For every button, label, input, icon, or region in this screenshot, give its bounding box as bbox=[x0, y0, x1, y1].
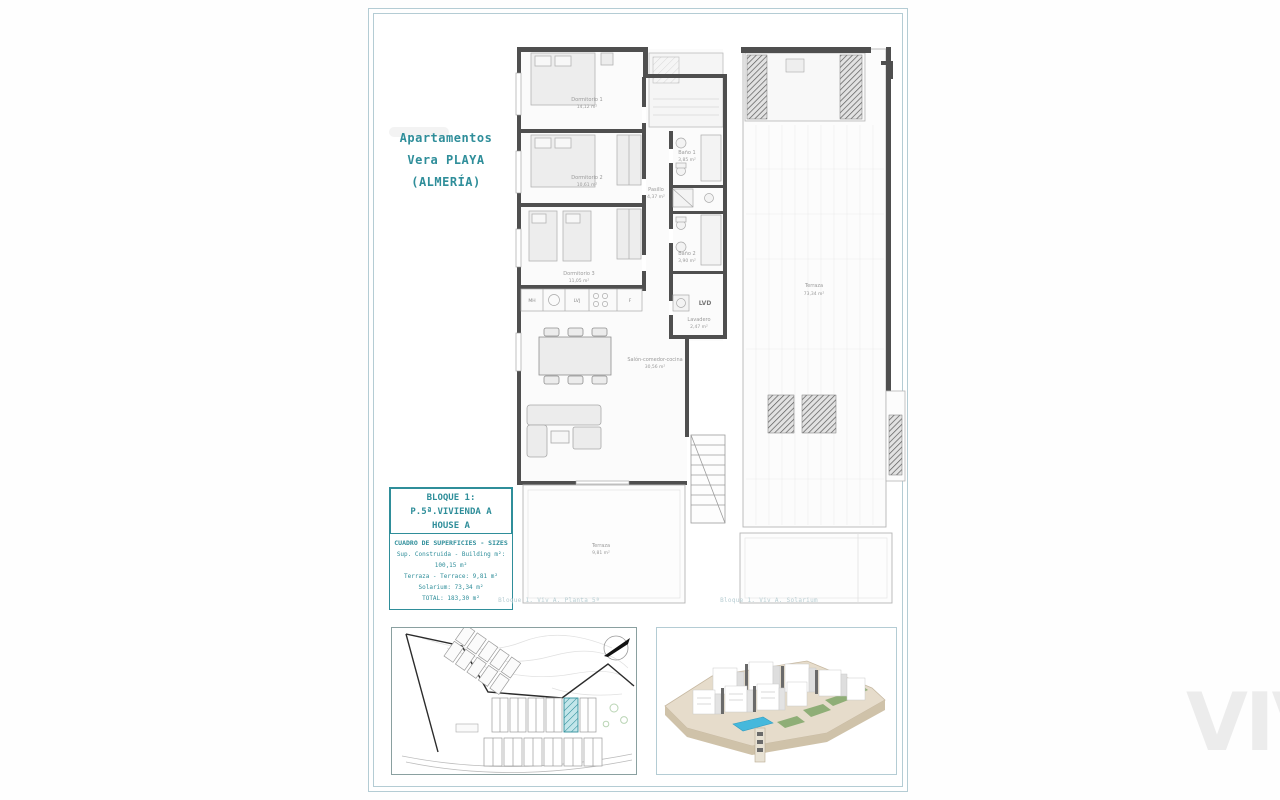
room-label-solarium-terraza: Terraza bbox=[804, 283, 823, 289]
room-area-dormitorio-1: 14,12 m² bbox=[577, 104, 598, 110]
room-area-terraza: 9,81 m² bbox=[592, 550, 610, 556]
drawing-sheet: Apartamentos Vera PLAYA (ALMERÍA) BLOQUE… bbox=[368, 8, 908, 792]
dining-table bbox=[539, 328, 611, 384]
surface-row-building: Sup. Construida - Building m²: 100,15 m² bbox=[391, 549, 511, 571]
project-title-line1: Apartamentos bbox=[387, 127, 505, 149]
appliance-label-lvd: LVD bbox=[699, 300, 712, 307]
room-label-pasillo: Pasillo bbox=[648, 187, 664, 193]
render-tower bbox=[755, 728, 765, 762]
floor-plan: Dormitorio 1 14,12 m² Dormitorio 2 10,61… bbox=[509, 39, 737, 617]
surface-table-title: CUADRO DE SUPERFICIES - SIZES bbox=[391, 538, 511, 549]
solarium-plan-caption: Bloque 1. Viv A. Solarium bbox=[699, 597, 839, 604]
room-area-pasillo: 4,37 m² bbox=[647, 194, 665, 200]
beds-dorm3 bbox=[529, 209, 641, 261]
site-plan bbox=[392, 628, 636, 774]
vive-watermark: VIVE bbox=[1186, 676, 1280, 769]
unit-row-top bbox=[492, 698, 596, 732]
unit-cluster-left bbox=[444, 628, 521, 694]
north-arrow-icon bbox=[604, 636, 630, 660]
block-info-box: BLOQUE 1: P.5ª.VIVIENDA A HOUSE A bbox=[389, 487, 513, 537]
room-area-dormitorio-2: 10,61 m² bbox=[577, 182, 598, 188]
room-area-solarium-terraza: 73,34 m² bbox=[804, 291, 825, 297]
aerial-render-image bbox=[657, 628, 896, 774]
page-background: Apartamentos Vera PLAYA (ALMERÍA) BLOQUE… bbox=[0, 0, 1280, 800]
room-area-lavadero: 2,47 m² bbox=[690, 324, 708, 330]
appliance-label-f: F bbox=[629, 298, 632, 304]
project-title-line3: (ALMERÍA) bbox=[387, 171, 505, 193]
highlighted-unit bbox=[564, 698, 578, 732]
room-area-bano-2: 3,90 m² bbox=[678, 258, 696, 264]
room-area-dormitorio-3: 11,05 m² bbox=[569, 278, 590, 284]
surface-row-solarium: Solarium: 73,34 m² bbox=[391, 582, 511, 593]
site-plan-panel bbox=[391, 627, 637, 775]
floor-plan-caption: Bloque 1. Viv A. Planta 5ª bbox=[479, 597, 619, 604]
communal-core bbox=[649, 53, 723, 127]
laundry-fixtures bbox=[673, 295, 689, 311]
solarium-plan: Terraza 73,34 m² bbox=[738, 39, 908, 617]
room-label-dormitorio-3: Dormitorio 3 bbox=[563, 271, 594, 277]
project-title-line2: Vera PLAYA bbox=[387, 149, 505, 171]
unit-row-bottom bbox=[484, 738, 602, 766]
appliance-label-mh: MH bbox=[528, 298, 535, 304]
room-label-salon: Salón-comedor-cocina bbox=[627, 356, 682, 363]
stair-bulkhead bbox=[745, 53, 865, 121]
render-panel bbox=[656, 627, 897, 775]
room-label-bano-2: Baño 2 bbox=[678, 251, 696, 257]
surface-row-terrace: Terraza - Terrace: 9,81 m² bbox=[391, 571, 511, 582]
lower-terrace bbox=[740, 533, 892, 603]
room-label-dormitorio-1: Dormitorio 1 bbox=[571, 97, 602, 103]
site-trees bbox=[603, 704, 627, 727]
room-label-dormitorio-2: Dormitorio 2 bbox=[571, 175, 602, 181]
block-info-line1: BLOQUE 1: bbox=[392, 491, 510, 505]
stairs bbox=[691, 435, 725, 523]
pergola-gratings bbox=[768, 395, 836, 433]
room-label-bano-1: Baño 1 bbox=[678, 150, 696, 156]
room-label-terraza: Terraza bbox=[591, 543, 610, 549]
site-pool-strip bbox=[456, 724, 478, 732]
right-extension bbox=[886, 391, 905, 481]
room-label-lavadero: Lavadero bbox=[687, 317, 710, 323]
room-area-salon: 30,56 m² bbox=[645, 364, 666, 370]
room-area-bano-1: 3,85 m² bbox=[678, 157, 696, 163]
project-title: Apartamentos Vera PLAYA (ALMERÍA) bbox=[387, 127, 505, 193]
appliance-label-lvj: LVJ bbox=[574, 298, 580, 304]
block-info-line3: HOUSE A bbox=[392, 519, 510, 533]
block-info-line2: P.5ª.VIVIENDA A bbox=[392, 505, 510, 519]
kitchen-counter bbox=[521, 289, 642, 311]
